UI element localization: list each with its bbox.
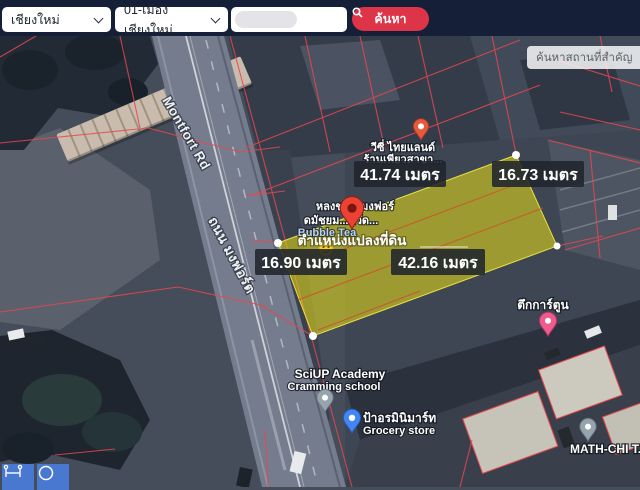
parcel-corner-dot — [554, 243, 561, 250]
top-bar: เชียงใหม่ 01-เมืองเชียงใหม่ ค้นหา — [0, 0, 640, 36]
autofill-chip — [235, 11, 297, 28]
place-search-placeholder: ค้นหาสถานที่สำคัญ — [536, 49, 632, 67]
poi-grocery-name: ป้าอรมินิมาร์ท — [363, 411, 436, 425]
province-select[interactable]: เชียงใหม่ — [2, 7, 111, 32]
poi-vichy-name: วีซี่ ไทยแลนด์ — [370, 139, 435, 154]
parcel-corner-dot — [512, 151, 520, 159]
satellite-map[interactable]: Montfort Rd ถนน มงฟอร์ต วีซี่ ไทยแลนด์ ร… — [0, 0, 640, 487]
measure-distance-icon — [2, 464, 24, 479]
poi-line2: ดมัชยม...หวัด... — [304, 214, 378, 227]
poi-sciup-name: SciUP Academy — [295, 367, 386, 381]
measurement-left: 16.90 เมตร — [255, 249, 347, 275]
measurement-right: 16.73 เมตร — [492, 161, 584, 187]
parcel-corner-dot — [274, 239, 282, 247]
parcel-corner-dot — [309, 332, 317, 340]
measurement-top-value: 41.74 เมตร — [360, 167, 440, 184]
district-select[interactable]: 01-เมืองเชียงใหม่ — [115, 7, 228, 32]
draw-circle-tool-button[interactable] — [37, 464, 69, 490]
district-select-value: 01-เมืองเชียงใหม่ — [124, 0, 206, 40]
draw-circle-icon — [37, 464, 55, 482]
chevron-down-icon — [94, 14, 104, 24]
measurement-left-value: 16.90 เมตร — [261, 255, 341, 272]
place-search-box[interactable]: ค้นหาสถานที่สำคัญ — [527, 46, 640, 69]
car — [608, 205, 617, 220]
search-icon — [352, 7, 363, 18]
province-select-value: เชียงใหม่ — [11, 10, 60, 30]
poi-math-name: MATH-CHI T... — [570, 442, 640, 456]
poi-cartoon-name: ตึกการ์ตูน — [517, 298, 569, 313]
measure-distance-tool-button[interactable] — [2, 464, 34, 490]
measurement-top: 41.74 เมตร — [354, 161, 446, 187]
measurement-bottom-value: 42.16 เมตร — [398, 255, 478, 272]
search-button-label: ค้นหา — [374, 9, 406, 29]
chevron-down-icon — [211, 14, 221, 24]
poi-sciup-sub: Cramming school — [288, 381, 381, 393]
keyword-input[interactable] — [231, 7, 347, 32]
search-button[interactable]: ค้นหา — [352, 7, 429, 31]
measurement-right-value: 16.73 เมตร — [498, 167, 578, 184]
parcel-location-label: ตำแหน่งแปลงที่ดิน — [298, 230, 408, 248]
poi-grocery-sub: Grocery store — [363, 425, 435, 437]
measurement-bottom: 42.16 เมตร — [391, 249, 485, 275]
